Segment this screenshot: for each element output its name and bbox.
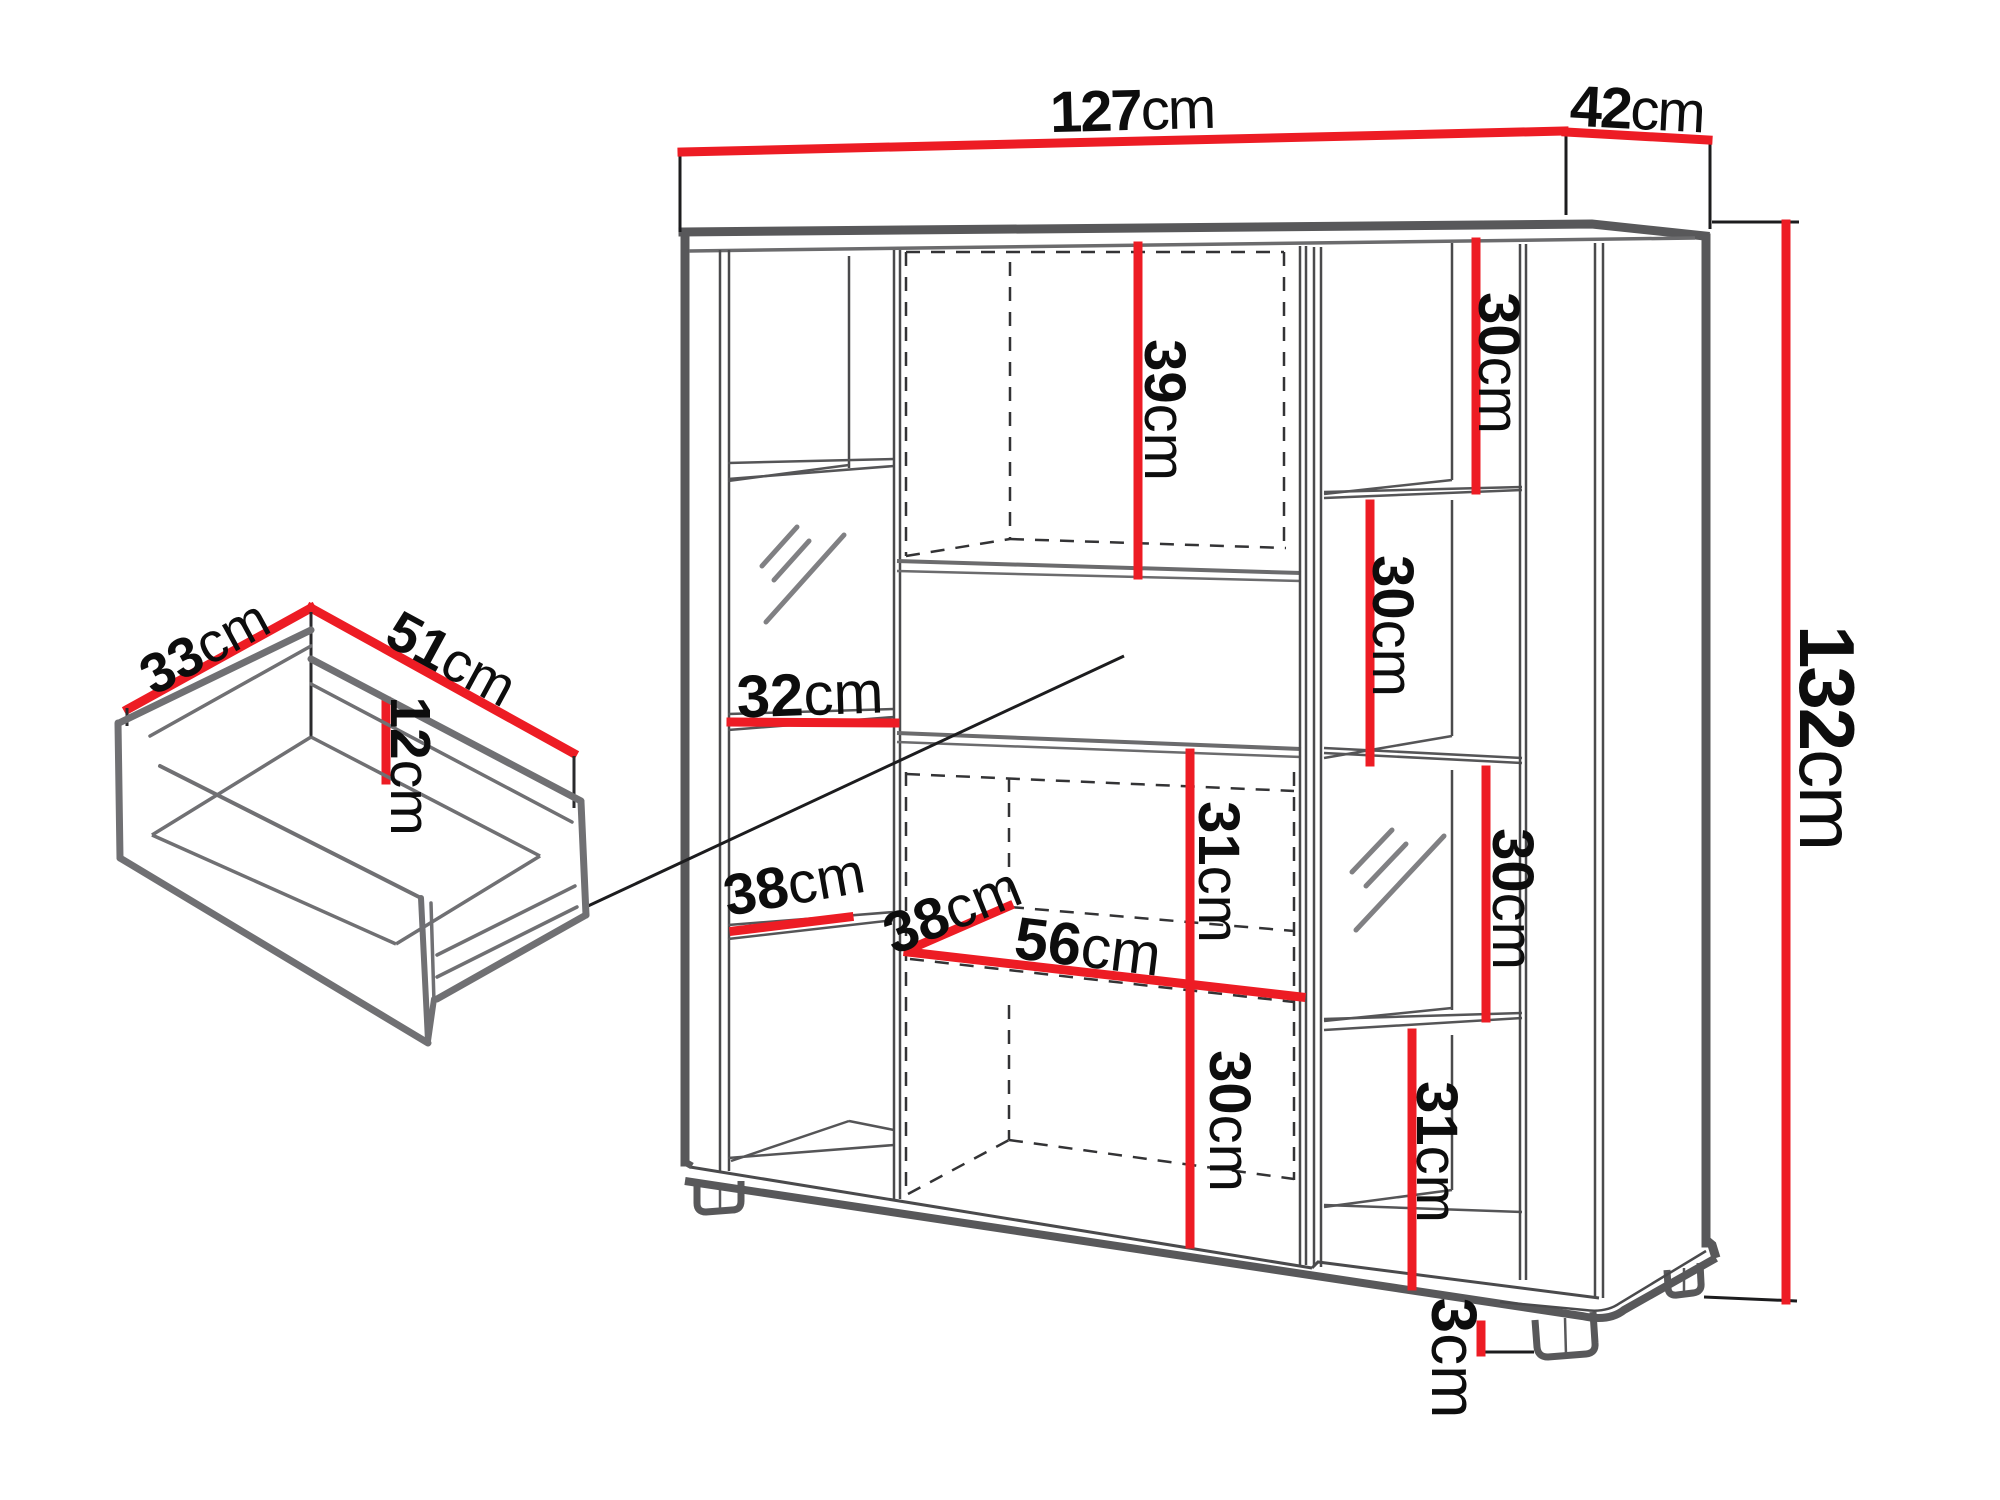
svg-text:3cm: 3cm <box>1418 1298 1490 1419</box>
svg-text:30cm: 30cm <box>1361 555 1426 697</box>
svg-text:132cm: 132cm <box>1783 625 1871 849</box>
svg-text:30cm: 30cm <box>1467 292 1532 434</box>
svg-text:30cm: 30cm <box>1481 828 1546 970</box>
svg-text:39cm: 39cm <box>1133 339 1198 481</box>
svg-text:12cm: 12cm <box>378 696 442 835</box>
svg-text:31cm: 31cm <box>1405 1081 1470 1223</box>
svg-text:127cm: 127cm <box>1049 75 1215 144</box>
svg-text:31cm: 31cm <box>1187 801 1252 943</box>
svg-text:42cm: 42cm <box>1568 73 1705 145</box>
svg-text:32cm: 32cm <box>736 658 885 730</box>
svg-text:30cm: 30cm <box>1198 1050 1263 1192</box>
